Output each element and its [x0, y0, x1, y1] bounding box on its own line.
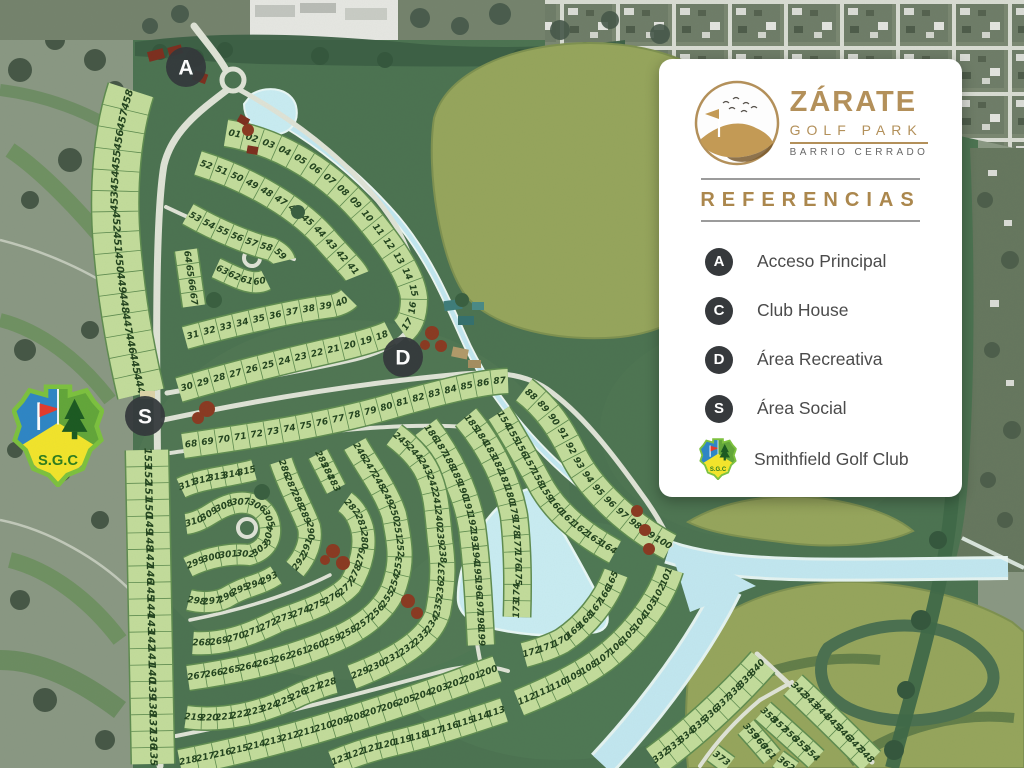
legend-label: Club House: [757, 300, 848, 321]
legend-item-C: CClub House: [659, 286, 962, 335]
golf-logo-icon: [693, 79, 781, 167]
legend-heading: REFERENCIAS: [659, 189, 962, 212]
legend-label: Acceso Principal: [757, 251, 886, 272]
logo-divider: [790, 142, 929, 144]
sgc-shield-icon: [699, 438, 737, 480]
legend-panel: ZÁRATE GOLF PARK BARRIO CERRADO REFERENC…: [659, 59, 962, 497]
legend-items: AAcceso PrincipalCClub HouseDÁrea Recrea…: [659, 231, 962, 433]
brand-logo: ZÁRATE GOLF PARK BARRIO CERRADO: [659, 79, 962, 167]
legend-label: Área Recreativa: [757, 349, 882, 370]
legend-item-S: SÁrea Social: [659, 384, 962, 433]
masterplan-screenshot: S.G.C: [0, 0, 1024, 768]
logo-title: ZÁRATE: [790, 88, 929, 117]
legend-label: Área Social: [757, 398, 847, 419]
legend-badge-C: C: [705, 297, 733, 325]
legend-item-A: AAcceso Principal: [659, 237, 962, 286]
legend-divider-top: [701, 178, 920, 180]
legend-divider-bottom: [701, 220, 920, 222]
legend-label-club: Smithfield Golf Club: [754, 449, 909, 470]
legend-item-club: Smithfield Golf Club: [659, 433, 962, 485]
legend-badge-S: S: [705, 395, 733, 423]
legend-badge-D: D: [705, 346, 733, 374]
logo-subtitle: GOLF PARK: [790, 122, 929, 138]
logo-tagline: BARRIO CERRADO: [790, 147, 929, 158]
legend-item-D: DÁrea Recreativa: [659, 335, 962, 384]
legend-badge-A: A: [705, 248, 733, 276]
